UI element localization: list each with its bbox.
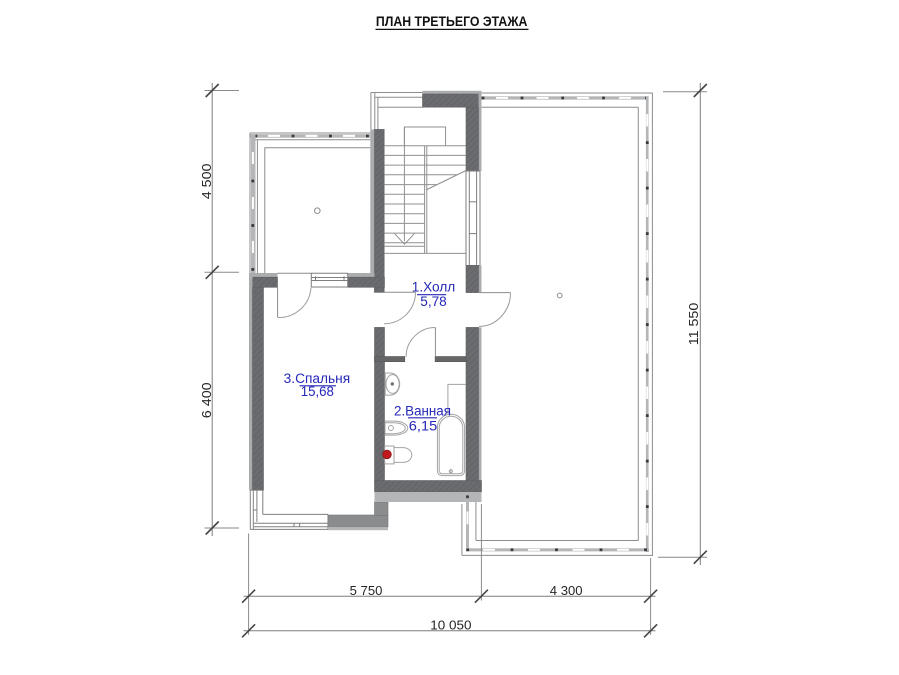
svg-text:11 550: 11 550	[687, 303, 701, 346]
svg-text:5 750: 5 750	[350, 584, 383, 598]
svg-text:5,78: 5,78	[420, 294, 447, 309]
svg-text:ПЛАН ТРЕТЬЕГО ЭТАЖА: ПЛАН ТРЕТЬЕГО ЭТАЖА	[376, 14, 528, 29]
svg-text:6,15: 6,15	[409, 418, 437, 433]
svg-text:1.Холл: 1.Холл	[412, 280, 456, 295]
svg-text:4 300: 4 300	[550, 584, 583, 598]
svg-text:10 050: 10 050	[430, 618, 471, 632]
svg-text:2.Ванная: 2.Ванная	[394, 403, 451, 418]
svg-text:6 400: 6 400	[200, 382, 214, 418]
svg-text:4 500: 4 500	[200, 163, 214, 199]
svg-text:15,68: 15,68	[301, 384, 334, 399]
